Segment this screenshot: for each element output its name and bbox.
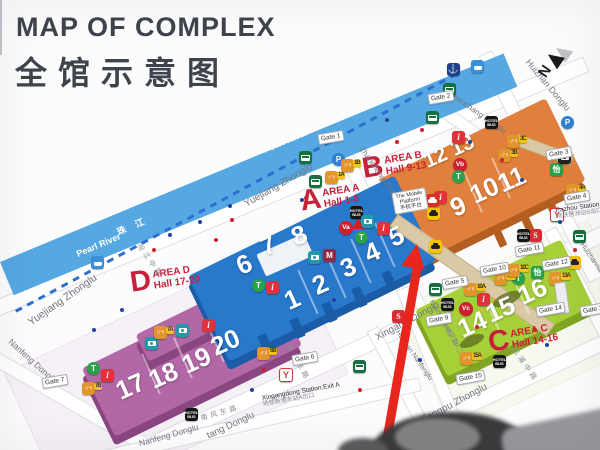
toilet-tag: 3B (510, 150, 518, 157)
toilet-tag: 10A (476, 284, 486, 291)
map-dot (214, 238, 218, 242)
map-dot (358, 388, 362, 392)
map-dot (228, 204, 232, 208)
info-icon: i (477, 293, 490, 306)
toilet-glyph: ♂♀ (156, 329, 165, 336)
map-dot (250, 388, 254, 392)
map-dot (92, 328, 96, 332)
camera-icon (361, 215, 374, 228)
map-dot (420, 128, 424, 132)
metro-icon: Y (279, 368, 293, 382)
dock-finger (493, 228, 508, 248)
camera-icon (308, 251, 321, 264)
info-icon: i (377, 222, 390, 235)
t-marker: T (355, 231, 368, 244)
map-title-en: MAP OF COMPLEX (16, 12, 276, 43)
bus-icon (429, 283, 442, 296)
toilet-icon: ♂♀7A (154, 326, 167, 339)
complex-map: MAP OF COMPLEX 全馆示意图 Pearl River 珠 江 Pea… (0, 0, 600, 450)
hotel-bus-icon: HOTEL BUS (517, 229, 530, 242)
area-c-letter: C (486, 328, 511, 356)
toilet-tag: 10C (519, 265, 529, 272)
map-dot (475, 325, 479, 329)
toilet-glyph: ♂♀ (466, 286, 475, 293)
bus-icon (353, 360, 366, 373)
toilet-glyph: ♂♀ (509, 267, 518, 274)
toilet-tag: 13A (561, 273, 571, 280)
map-dot (545, 343, 549, 347)
map-dot (395, 140, 399, 144)
va-marker: Va (339, 221, 353, 235)
map-dot (304, 196, 308, 200)
toilet-glyph: ♂♀ (551, 275, 560, 282)
map-dot (120, 308, 124, 312)
s-marker: S (529, 229, 542, 242)
toilet-tag: 7A (166, 327, 174, 334)
t-marker: T (452, 170, 465, 183)
toilet-tag: 6B (269, 348, 277, 355)
map-dot (418, 358, 422, 362)
map-dot (168, 233, 172, 237)
map-dot (468, 140, 472, 144)
toilet-icon: ♂♀1B (341, 159, 354, 172)
map-dot (573, 248, 577, 252)
ferry-icon (91, 256, 104, 269)
t-marker: T (252, 279, 265, 292)
t-marker: T (87, 362, 100, 375)
toilet-glyph: ♂♀ (84, 385, 93, 392)
toilet-glyph: ♂♀ (509, 138, 518, 145)
taxi-icon (429, 240, 442, 253)
hotel-bus-icon: HOTEL BUS (185, 408, 198, 421)
toilet-glyph: ♂♀ (343, 162, 352, 169)
map-dot (230, 218, 234, 222)
toilet-glyph: ♂♀ (462, 355, 471, 362)
map-dot (198, 220, 202, 224)
map-dot (262, 368, 266, 372)
toilet-tag: 15A (472, 353, 482, 360)
toilet-icon: ♂♀7B (82, 382, 95, 395)
person-hair-highlight (395, 418, 480, 450)
toilet-icon: ♂♀1A (325, 171, 338, 184)
info-icon: i (101, 369, 114, 382)
bus-icon (573, 230, 586, 243)
toilet-tag: 3C (519, 136, 527, 143)
hotel-bus-icon: HOTEL BUS (485, 116, 498, 129)
ferry-icon (471, 60, 484, 73)
toilet-glyph: ♂♀ (496, 275, 505, 282)
anchor-icon: ⚓ (447, 63, 460, 76)
toilet-tag: 7B (94, 383, 102, 390)
map-dot (520, 178, 524, 182)
toilet-tag: 1B (353, 160, 361, 167)
bus-icon (426, 111, 439, 124)
info-icon: i (266, 281, 279, 294)
toilet-glyph: ♂♀ (259, 350, 268, 357)
toilet-icon: ♂♀3C (507, 135, 520, 148)
toilet-tag: 1A (337, 172, 345, 179)
map-dot (385, 118, 389, 122)
toilet-icon: ♂♀6B (257, 347, 270, 360)
parking-icon: P (561, 116, 574, 129)
clinic-icon: 怡 (550, 163, 563, 176)
area-d-letter: D (129, 268, 153, 296)
hotel-bus-icon: HOTEL BUS (441, 298, 454, 311)
hotel-bus-icon: HOTEL BUS (493, 355, 506, 368)
map-dot (500, 158, 504, 162)
bus-icon (299, 151, 312, 164)
taxi-icon (427, 207, 440, 220)
photo-edge (0, 0, 2, 55)
info-icon: i (202, 319, 215, 332)
vc-marker: Vc (459, 302, 473, 316)
map-dot (332, 298, 336, 302)
camera-icon (176, 324, 189, 337)
map-title-zh: 全馆示意图 (15, 48, 230, 94)
map-dot (533, 328, 537, 332)
toilet-icon: ♂♀15A (460, 352, 473, 365)
info-icon: i (452, 131, 465, 144)
map-dot (152, 248, 156, 252)
toilet-glyph: ♂♀ (327, 174, 336, 181)
m-marker: M (323, 249, 336, 262)
bus-icon (309, 175, 322, 188)
